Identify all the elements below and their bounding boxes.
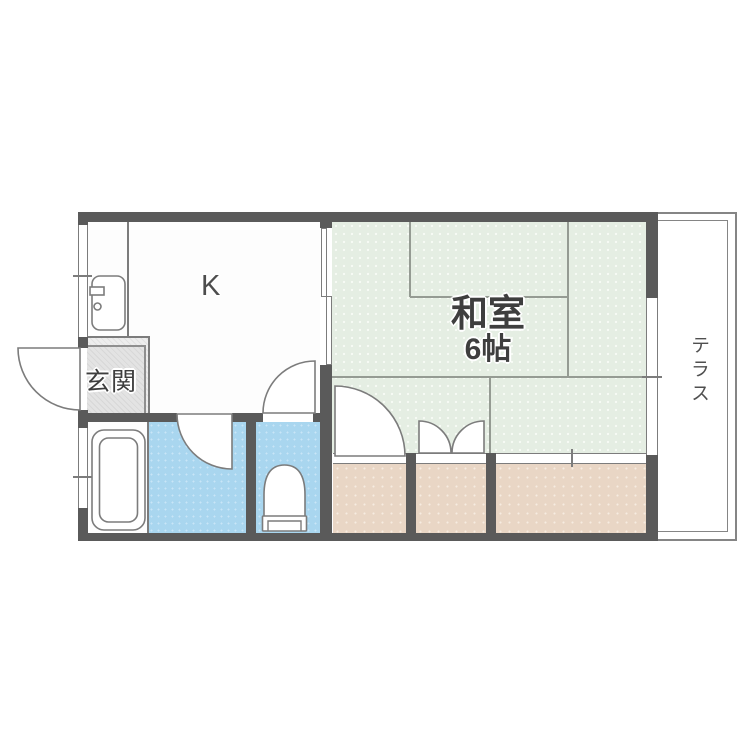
wall-bottom xyxy=(78,533,658,541)
tatami-room-label: 和室 6帖 xyxy=(398,295,578,365)
wall-closet-divider-2 xyxy=(486,453,496,533)
wall-left-a xyxy=(78,212,88,225)
kitchen-window-tick xyxy=(73,275,92,277)
closet-2-track xyxy=(416,453,486,464)
entrance-label: 玄関 xyxy=(85,362,137,398)
wall-mid-c xyxy=(313,413,332,422)
genkan-right-line xyxy=(148,337,150,415)
tatami-room-name: 和室 xyxy=(398,295,578,332)
sliding-door-panel-2 xyxy=(326,296,332,365)
wall-top xyxy=(78,212,658,222)
tatami-line-v3 xyxy=(489,377,491,454)
terrace-label: テラス xyxy=(685,335,712,407)
wall-mid-a xyxy=(78,413,177,422)
bath-window xyxy=(78,428,88,508)
tatami-room-size: 6帖 xyxy=(398,335,578,365)
wall-left-d xyxy=(78,508,88,541)
kitchen-counter-line xyxy=(127,222,129,337)
wall-closet-divider-1 xyxy=(406,453,416,533)
toilet-room xyxy=(256,422,322,533)
washroom xyxy=(148,422,246,533)
wall-right-b xyxy=(646,455,658,541)
wall-mid-b xyxy=(232,413,263,422)
closet-1 xyxy=(333,464,406,533)
kitchen-label: K xyxy=(201,270,220,303)
kitchen-window xyxy=(78,225,88,337)
wall-k-tatami xyxy=(320,365,332,541)
closet-1-track xyxy=(333,453,406,464)
bath-washroom-divider xyxy=(147,422,149,533)
sliding-door-panel-1 xyxy=(321,228,327,297)
genkan-top-line xyxy=(87,336,150,338)
bath-window-tick xyxy=(73,476,92,478)
closet-3-slider-tick xyxy=(571,449,573,467)
entrance-door-swing xyxy=(18,348,80,410)
wall-right-a xyxy=(646,212,658,298)
wall-left-b xyxy=(78,337,88,348)
tatami-line-v1 xyxy=(409,222,411,297)
bath-room xyxy=(88,422,147,533)
wall-washroom-toilet xyxy=(246,422,256,533)
closet-3 xyxy=(496,464,646,533)
closet-2 xyxy=(416,464,486,533)
floorplan-canvas: K 玄関 和室 6帖 テラス xyxy=(0,0,750,750)
